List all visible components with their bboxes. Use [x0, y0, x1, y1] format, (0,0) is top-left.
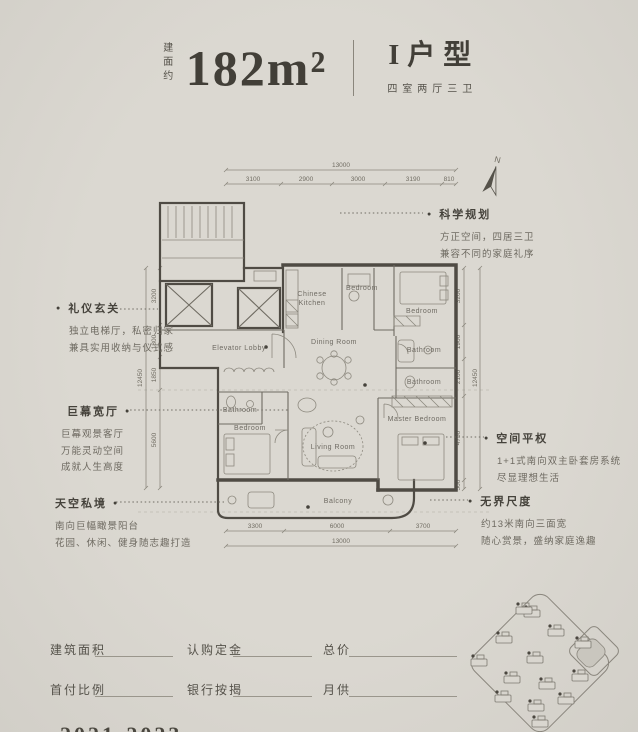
room-label-bathroom-left: Bathroom	[223, 407, 257, 414]
dimension-chain-bottom: 3300 6000 3700 13000	[224, 523, 458, 548]
footer-cut-text: 2021-2023	[60, 722, 182, 732]
dimension-chain-right: 3200 1900 2100 4750 500 12450	[455, 266, 482, 491]
svg-text:13000: 13000	[332, 162, 350, 169]
field-line	[95, 696, 173, 697]
svg-text:3000: 3000	[351, 176, 366, 183]
floor-plan-drawing: 13000 3100 2900 3000 3190 810 3300 6000 …	[0, 0, 638, 732]
dimension-chain-top: 13000 3100 2900 3000 3190 810	[224, 162, 458, 186]
room-label-bedroom-top: Bedroom	[346, 285, 378, 292]
title-type-block: I户型 四室两厅三卫	[380, 42, 479, 95]
title-block: 建面约 182m² I户型 四室两厅三卫	[0, 30, 638, 106]
floorplan-page: 13000 3100 2900 3000 3190 810 3300 6000 …	[0, 0, 638, 732]
title-type: I户型	[380, 42, 479, 70]
furniture	[224, 270, 448, 509]
svg-text:3100: 3100	[246, 176, 261, 183]
title-divider	[353, 40, 354, 96]
field-line	[233, 656, 312, 657]
svg-text:12450: 12450	[137, 369, 144, 387]
note-planning: ● 科学规划 方正空间，四居三卫 兼容不同的家庭礼序	[427, 206, 535, 263]
room-label-living: Living Room	[311, 444, 355, 451]
svg-text:1850: 1850	[151, 367, 158, 382]
svg-text:6000: 6000	[330, 523, 345, 530]
room-label-elevator-lobby: Elevator Lobby	[212, 345, 266, 352]
bullet-icon: ●	[125, 408, 131, 415]
title-area: 182m²	[186, 43, 328, 93]
svg-text:3190: 3190	[406, 176, 421, 183]
title-prefix: 建面约	[159, 42, 174, 98]
field-line	[349, 696, 457, 697]
field-line	[233, 696, 312, 697]
note-entry: ● 礼仪玄关 独立电梯厅，私密归家 兼具实用收纳与仪式感	[56, 300, 174, 357]
room-label-kitchen-2: Kitchen	[299, 300, 326, 307]
site-plan-buildings	[471, 602, 591, 727]
room-labels: Elevator Lobby Chinese Kitchen Bedroom B…	[212, 285, 446, 505]
svg-text:N: N	[493, 154, 501, 165]
svg-text:12450: 12450	[472, 369, 479, 387]
room-label-dining: Dining Room	[311, 339, 357, 346]
room-label-balcony: Balcony	[324, 498, 352, 505]
room-label-bedroom-right: Bedroom	[406, 308, 438, 315]
north-arrow: N	[482, 153, 505, 195]
note-living-hall: 巨幕宽厅 ● 巨幕观景客厅 万能灵动空间 成就人生高度	[61, 403, 131, 477]
bullet-icon: ●	[113, 500, 119, 507]
note-suites: ● 空间平权 1+1式南向双主卧套房系统 尽显理想生活	[484, 430, 621, 487]
svg-text:13000: 13000	[332, 538, 350, 545]
room-label-kitchen-1: Chinese	[297, 291, 326, 298]
title-subtitle: 四室两厅三卫	[382, 80, 477, 95]
room-label-master: Master Bedroom	[388, 416, 447, 423]
svg-text:3300: 3300	[248, 523, 263, 530]
room-label-bedroom-left: Bedroom	[234, 425, 266, 432]
svg-text:2900: 2900	[299, 176, 314, 183]
note-balcony: 天空私境 ● 南向巨幅瞰景阳台 花园、休闲、健身随志趣打造	[55, 495, 192, 552]
room-label-bathroom-right2: Bathroom	[407, 379, 441, 386]
site-plan-minimap	[466, 589, 620, 732]
room-label-bathroom-right1: Bathroom	[407, 347, 441, 354]
svg-text:3700: 3700	[416, 523, 431, 530]
field-line	[95, 656, 173, 657]
note-width: ● 无界尺度 约13米南向三面宽 随心赏景，盛纳家庭逸趣	[468, 493, 597, 550]
bullet-icon: ●	[484, 435, 490, 442]
svg-text:810: 810	[444, 176, 455, 183]
field-line	[349, 656, 457, 657]
svg-text:5600: 5600	[151, 432, 158, 447]
field-label-monthly: 月供	[323, 681, 351, 698]
bullet-icon: ●	[468, 498, 474, 505]
bullet-icon: ●	[427, 211, 433, 218]
bullet-icon: ●	[56, 305, 62, 312]
walls	[160, 203, 456, 518]
field-label-total: 总价	[323, 641, 351, 658]
